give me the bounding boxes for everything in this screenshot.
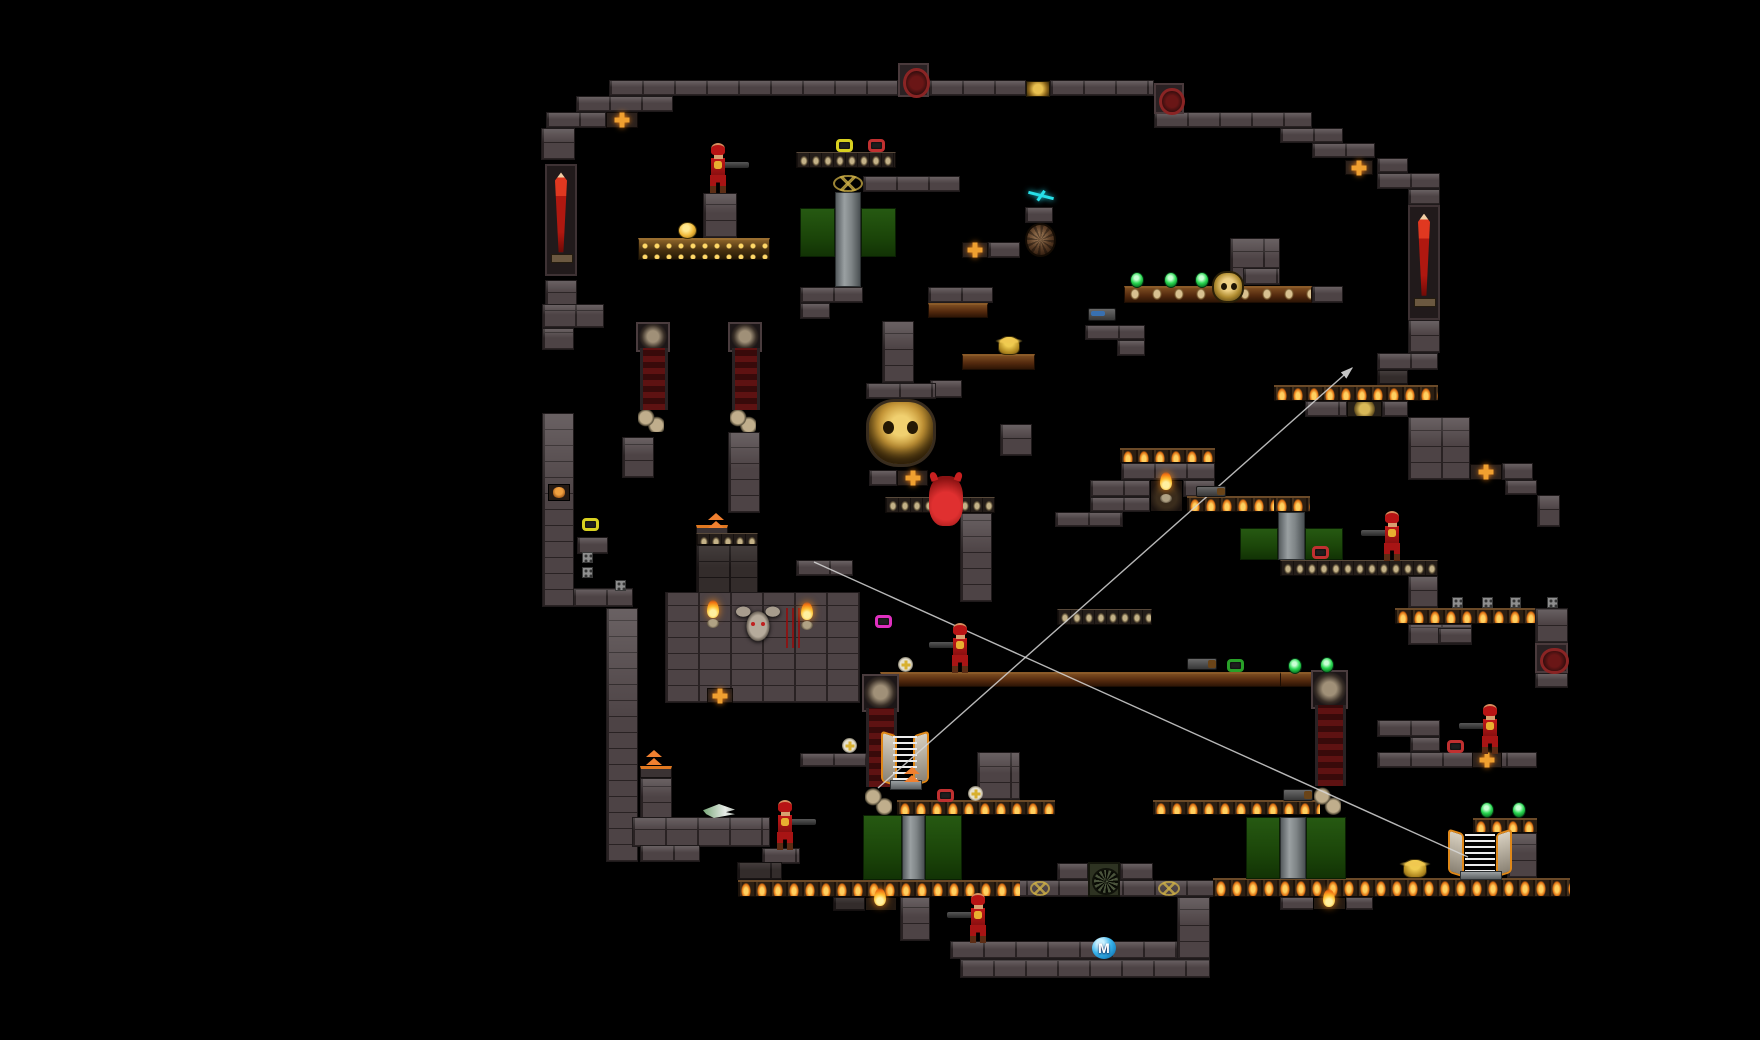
brick-tile xyxy=(800,753,867,767)
idol-item[interactable] xyxy=(1403,859,1427,878)
brick-tile xyxy=(1377,720,1440,737)
cross-pickup-tile[interactable] xyxy=(1472,752,1502,768)
door-track[interactable] xyxy=(1280,817,1306,879)
brick-tile xyxy=(1505,480,1537,495)
dark-brick-tile xyxy=(696,545,758,595)
brick-tile xyxy=(928,287,993,303)
skull-frieze-platform xyxy=(1057,609,1152,625)
brick-tile xyxy=(960,513,992,602)
lamp-frieze-platform xyxy=(897,800,1055,815)
sword-banner xyxy=(1408,205,1440,320)
cross-pickup-tile[interactable] xyxy=(1470,464,1502,480)
brick-tile xyxy=(1154,112,1312,128)
keycard-item[interactable] xyxy=(1227,659,1244,672)
dark-brick-tile xyxy=(1377,370,1408,385)
gray-block-item[interactable] xyxy=(1452,597,1463,608)
brick-tile xyxy=(542,328,574,350)
brick-tile xyxy=(542,304,604,328)
green-door-panel[interactable] xyxy=(1240,528,1278,560)
brick-tile xyxy=(960,959,1210,978)
brick-tile xyxy=(1535,673,1568,688)
keycard-item[interactable] xyxy=(836,139,853,152)
enemy-soldier[interactable] xyxy=(768,800,802,850)
brick-tile xyxy=(1377,752,1537,768)
lamp-frieze-platform xyxy=(1395,608,1535,624)
brick-tile xyxy=(1438,628,1472,644)
enemy-soldier[interactable] xyxy=(1375,511,1409,561)
escalator[interactable] xyxy=(1448,831,1512,880)
brick-tile xyxy=(622,437,654,478)
arrow-pad[interactable] xyxy=(646,750,662,766)
door-track[interactable] xyxy=(902,815,925,880)
trigger-line xyxy=(878,368,1352,788)
gun-item[interactable] xyxy=(1283,789,1313,801)
brick-tile xyxy=(609,80,898,96)
brick-tile xyxy=(1312,286,1343,303)
gem-item[interactable] xyxy=(1164,272,1178,288)
wood-platform xyxy=(880,672,1310,687)
cross-pickup-tile[interactable] xyxy=(962,242,988,258)
cross-pickup-tile[interactable] xyxy=(606,112,638,128)
gold-skull-tile xyxy=(1026,81,1050,97)
brick-tile xyxy=(977,752,1020,800)
gem-item[interactable] xyxy=(1130,272,1144,288)
enemy-soldier[interactable] xyxy=(943,623,977,673)
keycard-item[interactable] xyxy=(582,518,599,531)
keycard-item[interactable] xyxy=(1447,740,1464,753)
brick-tile xyxy=(640,845,700,862)
gray-block-item[interactable] xyxy=(1510,597,1521,608)
halo-cross-item[interactable] xyxy=(968,786,983,801)
brick-tile xyxy=(1085,325,1145,340)
pentagram-tile xyxy=(833,175,863,192)
pentagram-tile xyxy=(1158,881,1180,896)
enemy-soldier[interactable] xyxy=(701,143,735,193)
brick-tile xyxy=(542,413,574,607)
brick-tile xyxy=(1312,143,1375,158)
gray-block-item[interactable] xyxy=(1547,597,1558,608)
idol-item[interactable] xyxy=(998,336,1020,355)
game-map[interactable]: M xyxy=(0,0,1760,1040)
torch-sconce xyxy=(1150,480,1183,512)
brick-tile xyxy=(1117,340,1145,356)
dark-brick-tile xyxy=(737,862,782,880)
brick-tile xyxy=(703,193,737,238)
green-door-panel[interactable] xyxy=(861,208,896,257)
brick-tile xyxy=(1055,512,1123,527)
brick-tile xyxy=(1000,424,1032,456)
enemy-soldier[interactable] xyxy=(961,893,995,943)
brick-tile xyxy=(882,321,914,383)
brick-tile xyxy=(1537,495,1560,527)
wood-platform xyxy=(962,354,1035,370)
wood-platform xyxy=(1280,672,1312,687)
brick-tile xyxy=(1408,320,1440,353)
brick-tile xyxy=(728,432,760,513)
brick-tile xyxy=(796,560,853,576)
green-door-panel[interactable] xyxy=(925,815,962,880)
halo-cross-item[interactable] xyxy=(898,657,913,672)
gray-block-item[interactable] xyxy=(582,552,593,563)
flame-tile xyxy=(865,897,897,911)
flame-tile xyxy=(1313,897,1346,910)
skull-banner xyxy=(728,322,758,432)
lamp-frieze-platform xyxy=(1274,385,1438,401)
brick-tile xyxy=(800,303,830,319)
brick-tile xyxy=(1382,401,1408,417)
brick-tile xyxy=(1177,897,1210,959)
brick-tile xyxy=(1280,128,1343,143)
halo-cross-item[interactable] xyxy=(842,738,857,753)
brick-tile xyxy=(900,897,930,941)
gem-item[interactable] xyxy=(1320,657,1334,673)
gun-item[interactable] xyxy=(1196,486,1226,497)
brick-tile xyxy=(988,242,1020,258)
shield-disc xyxy=(1025,223,1056,257)
cross-pickup-tile[interactable] xyxy=(707,688,733,703)
brick-tile xyxy=(866,383,936,399)
brick-tile xyxy=(1377,173,1440,189)
brick-tile xyxy=(576,96,673,112)
skull-frieze-platform xyxy=(796,152,896,168)
gun-item[interactable] xyxy=(1088,308,1116,321)
brick-tile xyxy=(1243,268,1280,285)
brick-tile xyxy=(1090,497,1150,512)
brick-tile xyxy=(1535,608,1568,643)
brick-tile xyxy=(1377,158,1408,173)
sparkle-item[interactable] xyxy=(1028,186,1054,204)
gray-block-item[interactable] xyxy=(1482,597,1493,608)
brick-tile xyxy=(800,287,863,303)
brick-tile xyxy=(1120,863,1153,880)
wood-platform xyxy=(928,303,988,318)
pentagram-tile xyxy=(1030,881,1050,896)
goat-skull-wall xyxy=(665,592,860,703)
brick-tile xyxy=(1408,576,1438,608)
brick-tile xyxy=(869,470,897,486)
brick-tile xyxy=(1090,480,1150,497)
brick-tile xyxy=(863,176,960,192)
brick-tile xyxy=(1502,463,1533,480)
demon-emblem xyxy=(1154,83,1184,114)
arrow-pad[interactable] xyxy=(904,767,920,779)
dark-brick-tile xyxy=(833,897,865,911)
skull-tile xyxy=(1347,401,1382,417)
m-ball[interactable]: M xyxy=(1092,937,1116,959)
arrow-pad[interactable] xyxy=(708,513,724,529)
keycard-item[interactable] xyxy=(875,615,892,628)
keycard-item[interactable] xyxy=(1312,546,1329,559)
brick-tile xyxy=(929,80,1026,96)
lamp-frieze-platform xyxy=(1213,878,1570,897)
enemy-imp[interactable] xyxy=(929,476,963,526)
door-track[interactable] xyxy=(1278,512,1305,560)
brick-tile xyxy=(1408,417,1470,480)
brick-tile xyxy=(1410,737,1440,752)
demon-emblem xyxy=(898,63,929,97)
gem-item[interactable] xyxy=(1288,658,1302,674)
gray-block-item[interactable] xyxy=(615,580,626,591)
gold-skull-emblem xyxy=(866,399,936,467)
skull-face-emblem xyxy=(1212,271,1244,303)
brick-tile xyxy=(632,817,770,847)
keycard-item[interactable] xyxy=(868,139,885,152)
skull-frieze-platform xyxy=(696,533,758,545)
gray-block-item[interactable] xyxy=(582,567,593,578)
brick-tile xyxy=(640,778,672,820)
gear-block xyxy=(1088,862,1120,897)
enemy-soldier[interactable] xyxy=(1473,704,1507,754)
gem-item[interactable] xyxy=(1480,802,1494,818)
brick-tile xyxy=(1050,80,1154,96)
sword-banner xyxy=(545,164,577,276)
gem-item[interactable] xyxy=(1195,272,1209,288)
skull-banner xyxy=(1311,670,1344,815)
green-door-panel[interactable] xyxy=(1246,817,1280,879)
jet-item[interactable] xyxy=(703,804,735,818)
green-door-panel[interactable] xyxy=(800,208,835,257)
brick-tile xyxy=(1025,207,1053,223)
gem-item[interactable] xyxy=(1512,802,1526,818)
brick-tile xyxy=(950,941,1180,959)
mask-tile xyxy=(548,484,570,501)
brick-tile xyxy=(1377,353,1438,370)
coin-item[interactable] xyxy=(678,222,697,239)
keycard-item[interactable] xyxy=(937,789,954,802)
green-door-panel[interactable] xyxy=(1306,817,1346,879)
brick-tile xyxy=(546,112,606,128)
lamp-frieze-platform xyxy=(1120,448,1215,463)
green-door-panel[interactable] xyxy=(863,815,902,880)
skull-banner xyxy=(636,322,666,432)
lamp-frieze-platform xyxy=(1153,800,1320,815)
door-track[interactable] xyxy=(835,192,861,287)
brick-tile xyxy=(1057,863,1088,880)
cross-pickup-tile[interactable] xyxy=(897,470,928,486)
skull-frieze-platform xyxy=(1280,560,1438,576)
lamp-frieze-platform xyxy=(1274,496,1310,512)
jump-pad-tile[interactable] xyxy=(640,766,672,778)
brick-tile xyxy=(1408,189,1440,205)
gold-frieze-platform xyxy=(638,238,770,260)
brick-tile xyxy=(1305,401,1347,417)
brick-tile xyxy=(541,128,575,160)
cross-pickup-tile[interactable] xyxy=(1345,160,1373,175)
gun-item[interactable] xyxy=(1187,658,1217,670)
demon-emblem xyxy=(1535,643,1568,673)
